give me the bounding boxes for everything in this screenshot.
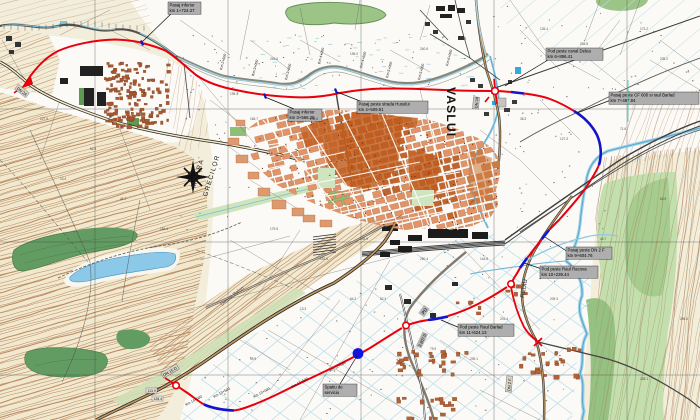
svg-text:126.4: 126.4 xyxy=(540,27,548,31)
svg-text:VASLUI: VASLUI xyxy=(444,87,458,137)
svg-text:128.4: 128.4 xyxy=(154,397,163,401)
svg-text:113.9: 113.9 xyxy=(148,389,156,393)
svg-text:127.3: 127.3 xyxy=(560,137,568,141)
svg-text:km 6+896.41: km 6+896.41 xyxy=(548,54,574,59)
svg-text:Pod peste Raul Barlad: Pod peste Raul Barlad xyxy=(460,325,504,330)
svg-text:64.2: 64.2 xyxy=(350,297,356,301)
svg-text:62.4: 62.4 xyxy=(90,147,96,151)
svg-text:Pasaj inferior: Pasaj inferior xyxy=(290,110,316,115)
svg-text:250.4: 250.4 xyxy=(420,257,428,261)
svg-text:km 11+624.13: km 11+624.13 xyxy=(460,330,488,335)
svg-text:179.5: 179.5 xyxy=(270,227,278,231)
svg-text:79.9: 79.9 xyxy=(430,347,436,351)
svg-text:49.9: 49.9 xyxy=(250,357,256,361)
svg-text:164.4: 164.4 xyxy=(160,227,168,231)
svg-text:17.3: 17.3 xyxy=(460,37,466,41)
svg-text:44.7: 44.7 xyxy=(600,237,606,241)
svg-text:201.4: 201.4 xyxy=(500,317,508,321)
svg-text:153.5: 153.5 xyxy=(320,257,328,261)
svg-text:Pasaj peste DN 2 F: Pasaj peste DN 2 F xyxy=(568,248,606,253)
svg-text:Pasaj peste CF 600 si raul Bar: Pasaj peste CF 600 si raul Barlad xyxy=(611,93,676,98)
svg-text:10.4: 10.4 xyxy=(60,177,66,181)
svg-text:Pod peste canal Delea: Pod peste canal Delea xyxy=(548,49,592,54)
svg-text:239.1: 239.1 xyxy=(470,357,478,361)
svg-text:227.9: 227.9 xyxy=(40,117,48,121)
svg-text:195.0: 195.0 xyxy=(350,52,358,56)
svg-text:208.8: 208.8 xyxy=(310,117,318,121)
svg-text:235.2: 235.2 xyxy=(660,57,668,61)
svg-text:km 4+509.91: km 4+509.91 xyxy=(359,107,385,112)
svg-text:38.3: 38.3 xyxy=(520,117,526,121)
svg-text:209.3: 209.3 xyxy=(550,297,558,301)
svg-text:144.8: 144.8 xyxy=(480,257,488,261)
svg-text:255.6: 255.6 xyxy=(680,317,688,321)
svg-text:245.6: 245.6 xyxy=(270,57,278,61)
svg-text:km 9+604.76: km 9+604.76 xyxy=(568,253,594,258)
svg-text:240.6: 240.6 xyxy=(420,47,428,51)
svg-text:41.7: 41.7 xyxy=(120,197,126,201)
svg-text:km 10+239.44: km 10+239.44 xyxy=(542,272,570,277)
svg-text:13.3: 13.3 xyxy=(300,307,306,311)
svg-text:Pasaj peste strada Husului: Pasaj peste strada Husului xyxy=(359,102,410,107)
svg-text:228.1: 228.1 xyxy=(640,377,648,381)
svg-text:165.7: 165.7 xyxy=(250,117,258,121)
svg-text:serviciu: serviciu xyxy=(325,390,340,395)
svg-text:km 7+497.84: km 7+497.84 xyxy=(611,98,637,103)
svg-text:Pod peste Raul Racova: Pod peste Raul Racova xyxy=(542,267,588,272)
svg-text:Pasaj inferior: Pasaj inferior xyxy=(170,3,196,8)
svg-text:195.4: 195.4 xyxy=(230,92,238,96)
svg-text:71.6: 71.6 xyxy=(620,127,626,131)
svg-text:145.9: 145.9 xyxy=(360,237,368,241)
svg-text:172.2: 172.2 xyxy=(640,27,648,31)
svg-text:km 1+724.37: km 1+724.37 xyxy=(170,8,196,13)
svg-text:245.8: 245.8 xyxy=(580,42,588,46)
svg-text:63.9: 63.9 xyxy=(660,197,666,201)
svg-text:82.3: 82.3 xyxy=(380,297,386,301)
svg-text:Spatiu de: Spatiu de xyxy=(325,385,344,390)
